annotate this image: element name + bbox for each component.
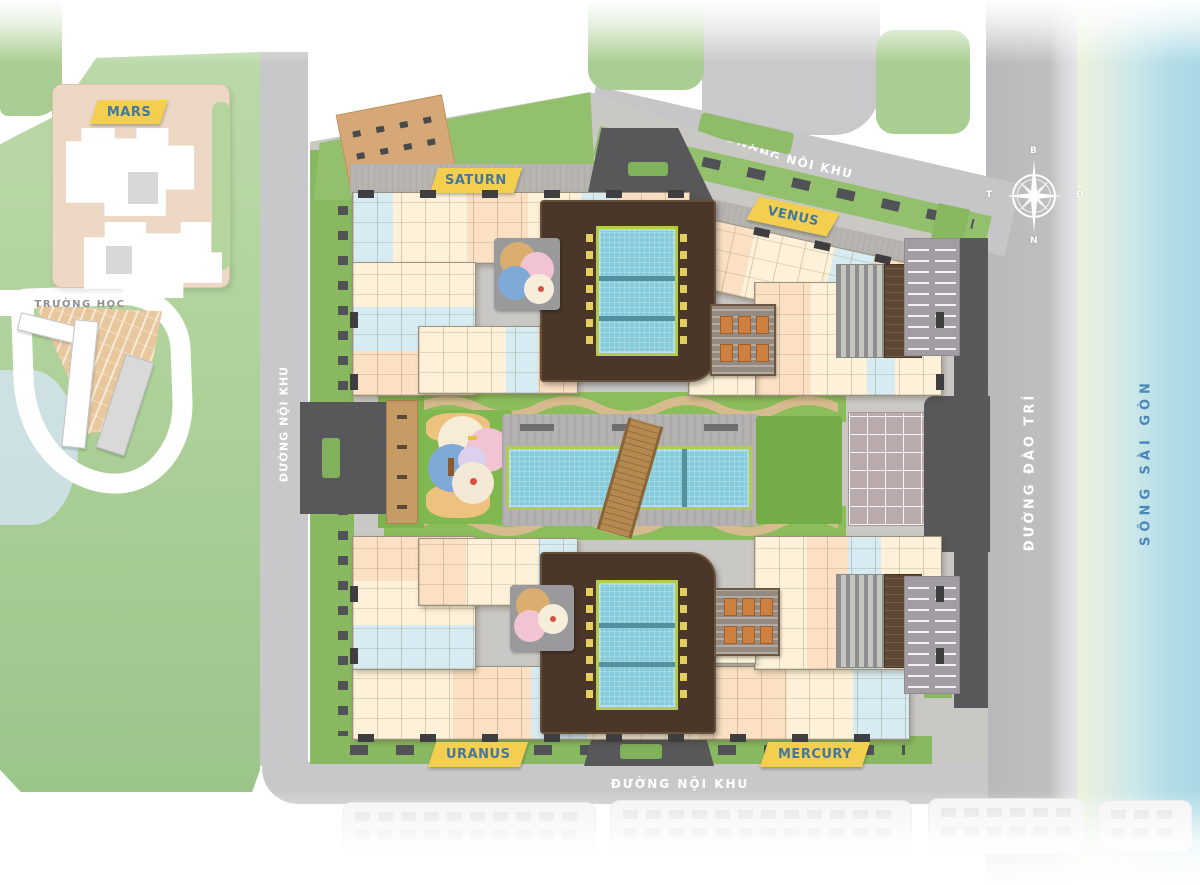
ramp-south <box>836 574 888 668</box>
bbq-terrace-west <box>386 400 418 524</box>
play-equipment-brown <box>448 458 454 476</box>
drive-north-median <box>628 162 668 176</box>
compass-north-label: B <box>1030 146 1037 156</box>
lawn-east <box>756 416 842 524</box>
mars-core-lower <box>106 246 132 274</box>
pool-south-loungers-left <box>586 586 593 698</box>
saigon-river <box>1075 0 1200 885</box>
ramp-north <box>836 264 888 358</box>
pool-south-loungers-right <box>680 586 687 698</box>
road-bottom-label: ĐƯỜNG NỘI KHU <box>600 777 760 791</box>
pool-north-loungers-right <box>680 232 687 344</box>
pool-south <box>596 580 678 710</box>
parking-north <box>904 238 960 356</box>
pool-north-loungers-left <box>586 232 593 344</box>
road-left-label: ĐƯỜNG NỘI KHU <box>278 366 291 482</box>
play-equipment-red <box>470 478 477 485</box>
faint-building <box>1098 800 1192 852</box>
site-plan-stage: SÔNG SÀI GÒN ĐƯỜNG ĐÀO TRÍ TRƯỜNG HỌC ĐƯ… <box>0 0 1200 885</box>
faint-building <box>342 802 596 854</box>
drive-west <box>300 402 386 514</box>
playground-south-dot-red <box>550 616 556 622</box>
compass-west-label: T <box>986 190 992 200</box>
park-patch-topright <box>876 30 970 134</box>
parking-south <box>904 576 960 694</box>
compass-east-label: Đ <box>1076 190 1084 200</box>
drive-south-median <box>620 744 662 759</box>
road-noi-khu-top-stub <box>702 0 880 135</box>
compass-rose: B N Đ T <box>984 146 1084 246</box>
tower-label-uranus: URANUS <box>428 742 528 767</box>
tower-label-mercury: MERCURY <box>760 742 870 767</box>
tower-label-mars: MARS <box>90 100 168 124</box>
mars-core-upper <box>128 172 158 204</box>
mars-green-strip <box>212 102 230 270</box>
faint-building <box>928 798 1086 854</box>
grid-plaza <box>848 412 932 526</box>
playground-north-dot-red <box>538 286 544 292</box>
pergola-south <box>714 588 780 656</box>
compass-south-label: N <box>1030 236 1038 246</box>
pool-north <box>596 226 678 356</box>
park-patch-topmid <box>588 0 704 90</box>
play-equipment-yellow <box>468 436 477 440</box>
pergola-north <box>710 304 776 376</box>
compass-star-icon <box>998 160 1070 232</box>
faint-building <box>610 800 912 854</box>
drive-west-median <box>322 438 340 478</box>
school-label: TRƯỜNG HỌC <box>20 299 140 310</box>
river-label: SÔNG SÀI GÒN <box>1139 378 1154 546</box>
road-dao-tri-label: ĐƯỜNG ĐÀO TRÍ <box>1023 393 1038 551</box>
